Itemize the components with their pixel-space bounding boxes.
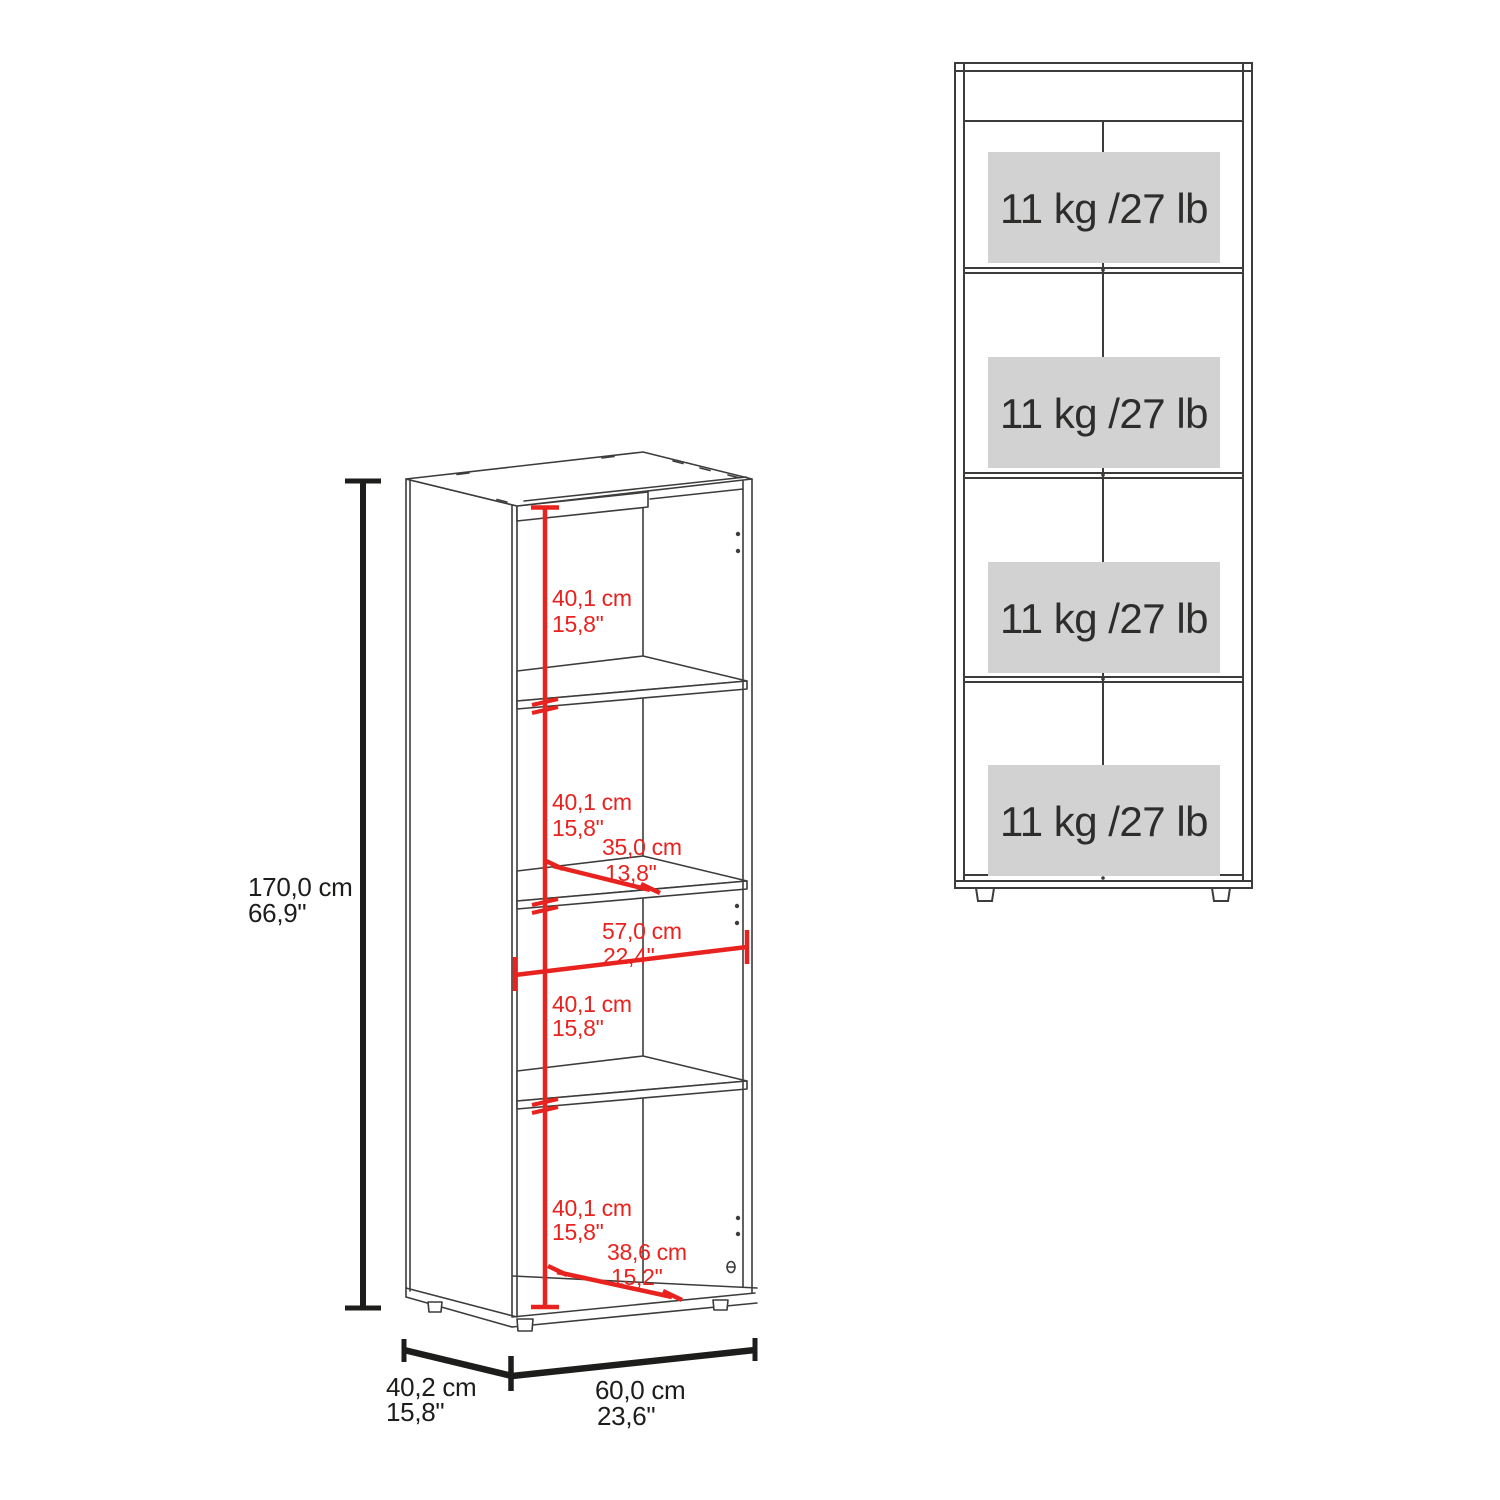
label-shelf-spacing-2-cm: 40,1 cm xyxy=(552,789,632,815)
label-shelf-depth-in: 13,8" xyxy=(605,860,657,886)
label-interior-width-in: 22,4" xyxy=(603,943,655,969)
label-overall-depth-in: 15,8" xyxy=(386,1397,444,1427)
cam-lock-icon xyxy=(727,1262,735,1273)
label-shelf-spacing-4-cm: 40,1 cm xyxy=(552,1195,632,1221)
label-bottom-depth-cm: 38,6 cm xyxy=(607,1239,687,1265)
left-side-panel xyxy=(406,479,517,1317)
label-shelf-spacing-4-in: 15,8" xyxy=(552,1219,604,1245)
label-shelf-spacing-3-cm: 40,1 cm xyxy=(552,991,632,1017)
label-overall-height-in: 66,9" xyxy=(248,898,306,928)
label-shelf-spacing-1-cm: 40,1 cm xyxy=(552,585,632,611)
shelf-capacity-label: 11 kg /27 lb xyxy=(1000,595,1208,642)
label-shelf-spacing-2-in: 15,8" xyxy=(552,815,604,841)
red-dimension-lines xyxy=(515,508,747,1308)
label-interior-width-cm: 57,0 cm xyxy=(602,918,682,944)
label-overall-width-in: 23,6" xyxy=(597,1401,655,1431)
label-shelf-depth-cm: 35,0 cm xyxy=(602,834,682,860)
width-dimension-line xyxy=(512,1350,755,1376)
shelf-capacity-label: 11 kg /27 lb xyxy=(1000,798,1208,845)
label-shelf-spacing-1-in: 15,8" xyxy=(552,611,604,637)
front-view-feet xyxy=(976,888,1230,901)
label-bottom-depth-in: 15,2" xyxy=(611,1264,663,1290)
shelf-capacity-label: 11 kg /27 lb xyxy=(1000,390,1208,437)
diagram-canvas: 40,1 cm 15,8" 40,1 cm 15,8" 35,0 cm 13,8… xyxy=(0,0,1500,1500)
shelf-capacity-label: 11 kg /27 lb xyxy=(1000,185,1208,232)
furniture-dimension-diagram: 40,1 cm 15,8" 40,1 cm 15,8" 35,0 cm 13,8… xyxy=(0,0,1500,1500)
label-shelf-spacing-3-in: 15,8" xyxy=(552,1015,604,1041)
